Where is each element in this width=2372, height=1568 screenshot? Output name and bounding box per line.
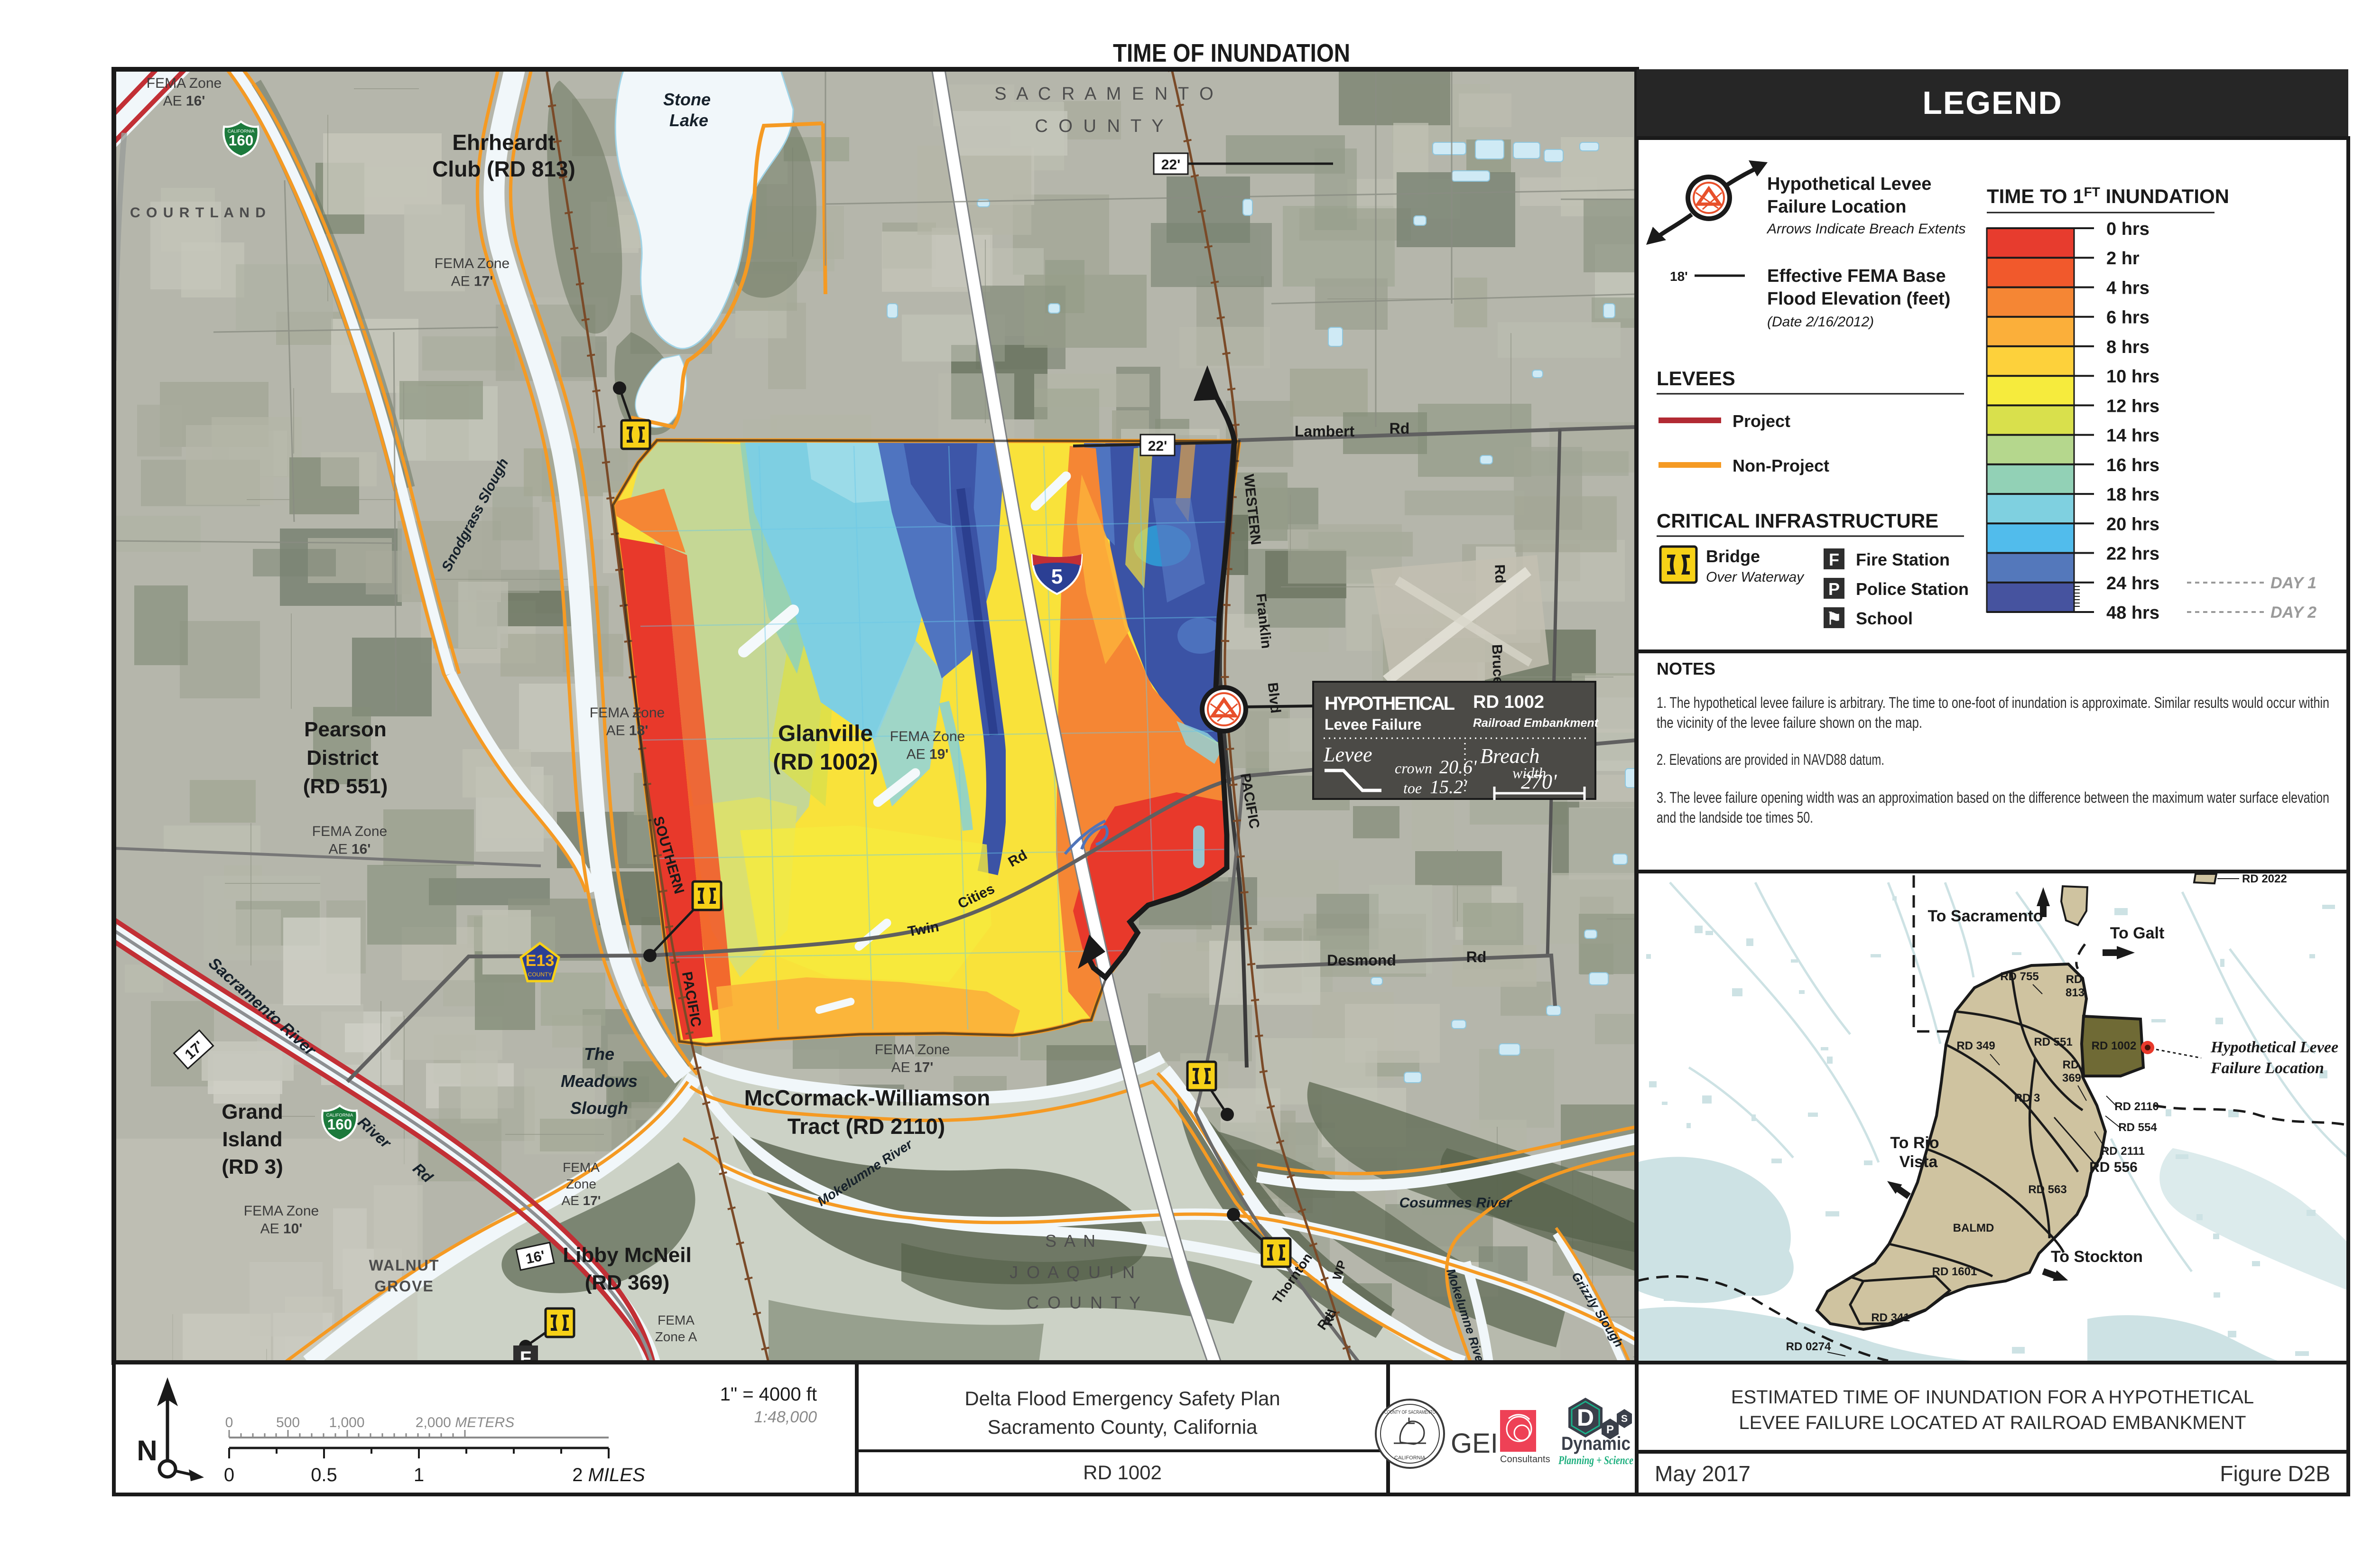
svg-text:RD 1002: RD 1002 — [2092, 1039, 2137, 1052]
svg-text:RD 2110: RD 2110 — [2114, 1100, 2159, 1113]
svg-text:RD 1002: RD 1002 — [1083, 1461, 1162, 1484]
svg-text:270': 270' — [1521, 770, 1557, 793]
svg-text:20.6': 20.6' — [1439, 756, 1477, 778]
svg-text:and the landside toe times 50.: and the landside toe times 50. — [1657, 809, 1813, 826]
svg-text:TIME OF INUNDATION: TIME OF INUNDATION — [1113, 39, 1350, 67]
svg-text:NOTES: NOTES — [1657, 659, 1715, 678]
svg-text:2. Elevations are provided in: 2. Elevations are provided in NAVD88 dat… — [1657, 751, 1884, 768]
svg-text:CALIFORNIA: CALIFORNIA — [326, 1113, 353, 1118]
svg-text:FEMA: FEMA — [658, 1313, 695, 1327]
svg-text:COUNTY: COUNTY — [528, 971, 552, 978]
svg-text:Consultants: Consultants — [1500, 1454, 1550, 1465]
svg-text:McCormack-Williamson: McCormack-Williamson — [744, 1086, 991, 1110]
svg-text:Club (RD 813): Club (RD 813) — [432, 157, 575, 181]
svg-text:RD 349: RD 349 — [1956, 1039, 1995, 1052]
svg-text:RD 563: RD 563 — [2028, 1183, 2066, 1196]
svg-text:0: 0 — [225, 1415, 233, 1430]
svg-text:FEMA Zone: FEMA Zone — [435, 256, 510, 271]
svg-text:C O U N T Y: C O U N T Y — [1027, 1293, 1142, 1312]
svg-text:16 hrs: 16 hrs — [2106, 455, 2159, 475]
svg-text:C O U R T L A N D: C O U R T L A N D — [130, 205, 267, 221]
svg-text:TIME TO 1FT INUNDATION: TIME TO 1FT INUNDATION — [1987, 185, 2229, 207]
svg-text:Meadows: Meadows — [561, 1071, 638, 1091]
svg-text:22': 22' — [1161, 157, 1181, 173]
svg-text:the vicinity of the levee fail: the vicinity of the levee failure shown … — [1657, 714, 1922, 731]
svg-text:ESTIMATED TIME OF INUNDATION F: ESTIMATED TIME OF INUNDATION FOR A HYPOT… — [1731, 1387, 2254, 1408]
svg-text:Dynamic: Dynamic — [1561, 1433, 1631, 1454]
svg-text:(Date 2/16/2012): (Date 2/16/2012) — [1767, 314, 1874, 330]
svg-text:AE 16': AE 16' — [163, 93, 205, 109]
svg-text:2 MILES: 2 MILES — [572, 1465, 645, 1485]
svg-text:District: District — [306, 746, 379, 770]
svg-text:500: 500 — [276, 1415, 300, 1430]
svg-text:Island: Island — [222, 1128, 282, 1151]
svg-text:Stone: Stone — [663, 90, 711, 109]
svg-text:Tract (RD 2110): Tract (RD 2110) — [788, 1114, 945, 1139]
svg-text:F: F — [1829, 550, 1839, 569]
svg-text:S A C R A M E N T O: S A C R A M E N T O — [994, 84, 1216, 104]
svg-text:Hypothetical Levee: Hypothetical Levee — [1767, 174, 1931, 194]
svg-text:18 hrs: 18 hrs — [2106, 485, 2159, 505]
svg-text:Figure D2B: Figure D2B — [2220, 1461, 2330, 1486]
svg-text:(RD 1002): (RD 1002) — [773, 750, 878, 775]
svg-text:Bridge: Bridge — [1706, 547, 1760, 566]
svg-text:FEMA Zone: FEMA Zone — [312, 824, 387, 839]
svg-text:Ehrheardt: Ehrheardt — [452, 130, 555, 155]
svg-text:FEMA: FEMA — [563, 1160, 600, 1175]
svg-text:RD 1601: RD 1601 — [1932, 1265, 1977, 1278]
svg-text:8 hrs: 8 hrs — [2106, 337, 2150, 357]
svg-text:Planning + Science: Planning + Science — [1558, 1454, 1633, 1467]
svg-text:0.5: 0.5 — [311, 1465, 337, 1485]
svg-text:FEMA Zone: FEMA Zone — [147, 75, 222, 91]
svg-text:BALMD: BALMD — [1953, 1222, 1994, 1234]
svg-text:RD 554: RD 554 — [2118, 1121, 2157, 1134]
svg-text:Blvd: Blvd — [1265, 682, 1284, 714]
svg-text:6 hrs: 6 hrs — [2106, 308, 2150, 328]
svg-text:RD 0274: RD 0274 — [1786, 1340, 1831, 1353]
svg-text:LEGEND: LEGEND — [1922, 85, 2062, 121]
svg-text:Lake: Lake — [669, 111, 708, 130]
svg-text:Sacramento County, California: Sacramento County, California — [988, 1416, 1258, 1438]
svg-text:To Stockton: To Stockton — [2051, 1248, 2143, 1266]
svg-text:Cosumnes River: Cosumnes River — [1399, 1195, 1513, 1211]
svg-text:⚑: ⚑ — [1826, 609, 1842, 628]
svg-text:COUNTY OF SACRAMENTO: COUNTY OF SACRAMENTO — [1384, 1410, 1436, 1415]
svg-text:15.2': 15.2' — [1430, 776, 1468, 798]
svg-text:(RD 551): (RD 551) — [303, 775, 388, 798]
svg-text:14 hrs: 14 hrs — [2106, 426, 2159, 446]
svg-text:GROVE: GROVE — [374, 1278, 434, 1295]
svg-text:12 hrs: 12 hrs — [2106, 396, 2159, 416]
svg-text:DAY 1: DAY 1 — [2270, 574, 2316, 592]
svg-text:RD 556: RD 556 — [2089, 1160, 2138, 1175]
svg-text:AE 17': AE 17' — [891, 1060, 934, 1076]
svg-text:Grand: Grand — [222, 1100, 283, 1123]
svg-text:RD 1002: RD 1002 — [1473, 692, 1544, 712]
svg-text:Zone: Zone — [566, 1177, 596, 1191]
svg-text:Libby McNeil: Libby McNeil — [563, 1243, 691, 1267]
svg-text:GEI: GEI — [1451, 1428, 1498, 1459]
svg-text:RD 551: RD 551 — [2034, 1036, 2072, 1048]
svg-text:Over Waterway: Over Waterway — [1706, 569, 1805, 585]
svg-text:LEVEE FAILURE LOCATED AT RAILR: LEVEE FAILURE LOCATED AT RAILROAD EMBANK… — [1739, 1412, 2246, 1433]
svg-text:0 hrs: 0 hrs — [2106, 219, 2150, 239]
svg-text:AE 10': AE 10' — [260, 1221, 303, 1237]
svg-text:Zone A: Zone A — [655, 1329, 697, 1344]
svg-text:RD 2111: RD 2111 — [2101, 1145, 2145, 1158]
svg-text:P: P — [1828, 579, 1840, 599]
svg-text:CALIFORNIA: CALIFORNIA — [228, 129, 255, 134]
svg-text:CALIFORNIA: CALIFORNIA — [1394, 1455, 1426, 1461]
svg-text:Delta Flood Emergency Safety P: Delta Flood Emergency Safety Plan — [964, 1387, 1280, 1410]
svg-text:1: 1 — [414, 1465, 424, 1485]
svg-text:0: 0 — [224, 1465, 234, 1485]
svg-text:1. The hypothetical levee fail: 1. The hypothetical levee failure is arb… — [1657, 694, 2329, 711]
svg-text:1" = 4000 ft: 1" = 4000 ft — [720, 1384, 817, 1405]
svg-text:Failure Location: Failure Location — [2210, 1059, 2324, 1077]
svg-text:Glanville: Glanville — [778, 721, 873, 746]
svg-text:1:48,000: 1:48,000 — [754, 1408, 817, 1426]
svg-text:AE 18': AE 18' — [606, 723, 649, 739]
svg-text:Levee: Levee — [1323, 743, 1372, 766]
svg-text:CRITICAL INFRASTRUCTURE: CRITICAL INFRASTRUCTURE — [1657, 510, 1938, 532]
svg-text:Arrows Indicate Breach Extents: Arrows Indicate Breach Extents — [1766, 221, 1966, 237]
svg-text:Failure Location: Failure Location — [1767, 197, 1906, 217]
svg-text:RD 3: RD 3 — [2014, 1092, 2040, 1104]
svg-text:2,000 METERS: 2,000 METERS — [416, 1415, 514, 1430]
svg-text:Railroad Embankment: Railroad Embankment — [1473, 716, 1599, 730]
svg-text:48 hrs: 48 hrs — [2106, 603, 2159, 623]
svg-text:20 hrs: 20 hrs — [2106, 514, 2159, 534]
svg-text:HYPOTHETICAL: HYPOTHETICAL — [1325, 693, 1456, 714]
svg-text:To Sacramento: To Sacramento — [1927, 907, 2043, 925]
svg-text:Rd: Rd — [1492, 564, 1508, 584]
svg-text:crown: crown — [1395, 760, 1432, 777]
svg-text:Non-Project: Non-Project — [1733, 456, 1829, 475]
svg-text:160: 160 — [229, 132, 254, 149]
svg-text:4 hrs: 4 hrs — [2106, 278, 2150, 298]
svg-text:FEMA Zone: FEMA Zone — [890, 729, 965, 744]
svg-text:RD 755: RD 755 — [2000, 970, 2038, 983]
svg-text:Flood Elevation (feet): Flood Elevation (feet) — [1767, 289, 1950, 309]
svg-text:RD: RD — [2063, 1058, 2079, 1071]
svg-text:Project: Project — [1733, 411, 1790, 431]
svg-text:FEMA Zone: FEMA Zone — [875, 1042, 950, 1058]
svg-text:Rd: Rd — [1390, 420, 1410, 437]
svg-text:LEVEES: LEVEES — [1657, 367, 1735, 390]
svg-text:160: 160 — [327, 1116, 352, 1133]
svg-text:S A N: S A N — [1045, 1231, 1097, 1251]
svg-text:369: 369 — [2062, 1072, 2081, 1085]
svg-text:To Rio: To Rio — [1890, 1134, 1939, 1152]
svg-text:2 hr: 2 hr — [2106, 249, 2140, 269]
svg-text:AE 19': AE 19' — [907, 747, 949, 762]
svg-text:22': 22' — [1148, 438, 1167, 454]
svg-text:5: 5 — [1051, 565, 1063, 588]
svg-text:Slough: Slough — [570, 1098, 628, 1118]
svg-text:E13: E13 — [526, 952, 555, 970]
svg-text:DAY 2: DAY 2 — [2270, 603, 2316, 622]
svg-text:Effective FEMA Base: Effective FEMA Base — [1767, 266, 1946, 286]
svg-text:N: N — [137, 1435, 157, 1466]
svg-text:(RD 369): (RD 369) — [585, 1271, 670, 1294]
svg-text:Vista: Vista — [1899, 1153, 1938, 1171]
svg-text:Fire Station: Fire Station — [1856, 550, 1950, 569]
svg-text:FEMA Zone: FEMA Zone — [244, 1203, 319, 1219]
svg-text:10 hrs: 10 hrs — [2106, 367, 2159, 387]
svg-text:May 2017: May 2017 — [1655, 1461, 1751, 1486]
svg-text:FEMA Zone: FEMA Zone — [590, 705, 665, 721]
svg-text:Hypothetical Levee: Hypothetical Levee — [2210, 1039, 2338, 1056]
svg-text:1,000: 1,000 — [329, 1415, 364, 1430]
svg-text:AE 17': AE 17' — [451, 274, 493, 289]
svg-text:Desmond: Desmond — [1327, 952, 1396, 969]
svg-text:J O A Q U I N: J O A Q U I N — [1010, 1262, 1137, 1282]
svg-text:Rd: Rd — [1466, 948, 1487, 965]
svg-text:WALNUT: WALNUT — [369, 1257, 440, 1274]
svg-text:24 hrs: 24 hrs — [2106, 574, 2159, 594]
svg-text:3. The levee failure opening w: 3. The levee failure opening width was a… — [1657, 789, 2329, 806]
svg-text:The: The — [584, 1044, 614, 1064]
svg-text:Lambert: Lambert — [1295, 423, 1355, 440]
svg-text:School: School — [1856, 609, 1913, 628]
svg-text:toe: toe — [1403, 779, 1422, 797]
svg-text:18': 18' — [1670, 269, 1688, 284]
svg-text:AE 17': AE 17' — [562, 1193, 601, 1208]
svg-text:C O U N T Y: C O U N T Y — [1035, 116, 1166, 136]
svg-text:813: 813 — [2066, 986, 2085, 999]
svg-text:S: S — [1621, 1413, 1628, 1424]
svg-text:Levee Failure: Levee Failure — [1325, 716, 1422, 733]
svg-text:D: D — [1577, 1404, 1594, 1431]
svg-text:To Galt: To Galt — [2110, 924, 2165, 942]
svg-text:22 hrs: 22 hrs — [2106, 544, 2159, 564]
svg-text:RD 2022: RD 2022 — [2242, 872, 2287, 885]
svg-text:Pearson: Pearson — [304, 718, 387, 741]
svg-text:RD 341: RD 341 — [1871, 1311, 1909, 1324]
svg-text:AE 16': AE 16' — [329, 842, 371, 857]
svg-text:RD: RD — [2066, 973, 2083, 986]
svg-text:(RD 3): (RD 3) — [222, 1155, 283, 1178]
svg-text:Police Station: Police Station — [1856, 579, 1969, 599]
